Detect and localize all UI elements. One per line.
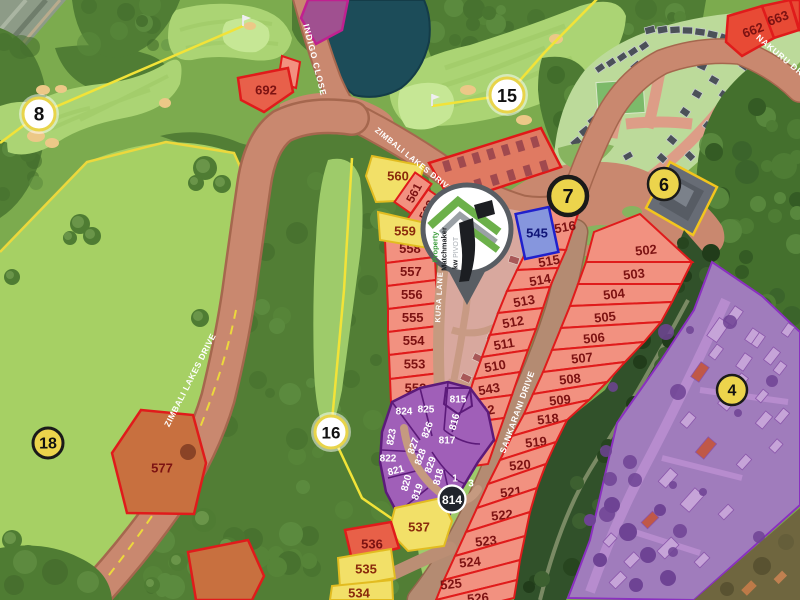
svg-text:814: 814 [442,493,462,507]
svg-text:692: 692 [255,83,277,98]
svg-text:6: 6 [659,175,669,195]
svg-text:506: 506 [582,329,605,346]
svg-text:503: 503 [622,265,645,282]
svg-text:525: 525 [439,575,462,592]
svg-text:534: 534 [348,586,370,600]
svg-text:545: 545 [526,226,548,241]
svg-text:15: 15 [497,86,517,106]
svg-text:507: 507 [570,349,593,366]
svg-text:559: 559 [394,224,416,239]
svg-text:Matchmaker: Matchmaker [440,227,449,271]
svg-text:1: 1 [452,474,458,485]
svg-text:18: 18 [39,436,57,453]
svg-text:502: 502 [634,241,657,258]
svg-text:16: 16 [322,424,341,443]
svg-text:554: 554 [403,333,425,348]
svg-text:535: 535 [355,562,377,577]
svg-text:3: 3 [468,479,474,490]
svg-text:553: 553 [404,357,426,372]
svg-text:8: 8 [34,105,45,126]
svg-text:817: 817 [439,436,456,447]
svg-text:kw PIVOT: kw PIVOT [453,236,460,269]
svg-text:557: 557 [400,264,422,279]
svg-text:524: 524 [458,553,482,570]
svg-text:825: 825 [418,405,435,416]
svg-text:4: 4 [728,383,737,400]
svg-text:556: 556 [401,287,423,302]
svg-text:536: 536 [361,537,383,552]
svg-text:505: 505 [593,308,616,325]
svg-text:577: 577 [151,461,173,476]
svg-text:555: 555 [402,310,424,325]
svg-text:815: 815 [450,395,467,406]
svg-text:822: 822 [380,454,397,465]
svg-text:537: 537 [408,520,430,535]
svg-text:560: 560 [387,169,409,184]
svg-text:504: 504 [602,285,626,302]
svg-text:Property: Property [431,231,440,263]
svg-text:526: 526 [466,589,489,600]
svg-text:824: 824 [396,407,413,418]
svg-text:508: 508 [558,370,581,387]
svg-text:7: 7 [562,186,573,208]
